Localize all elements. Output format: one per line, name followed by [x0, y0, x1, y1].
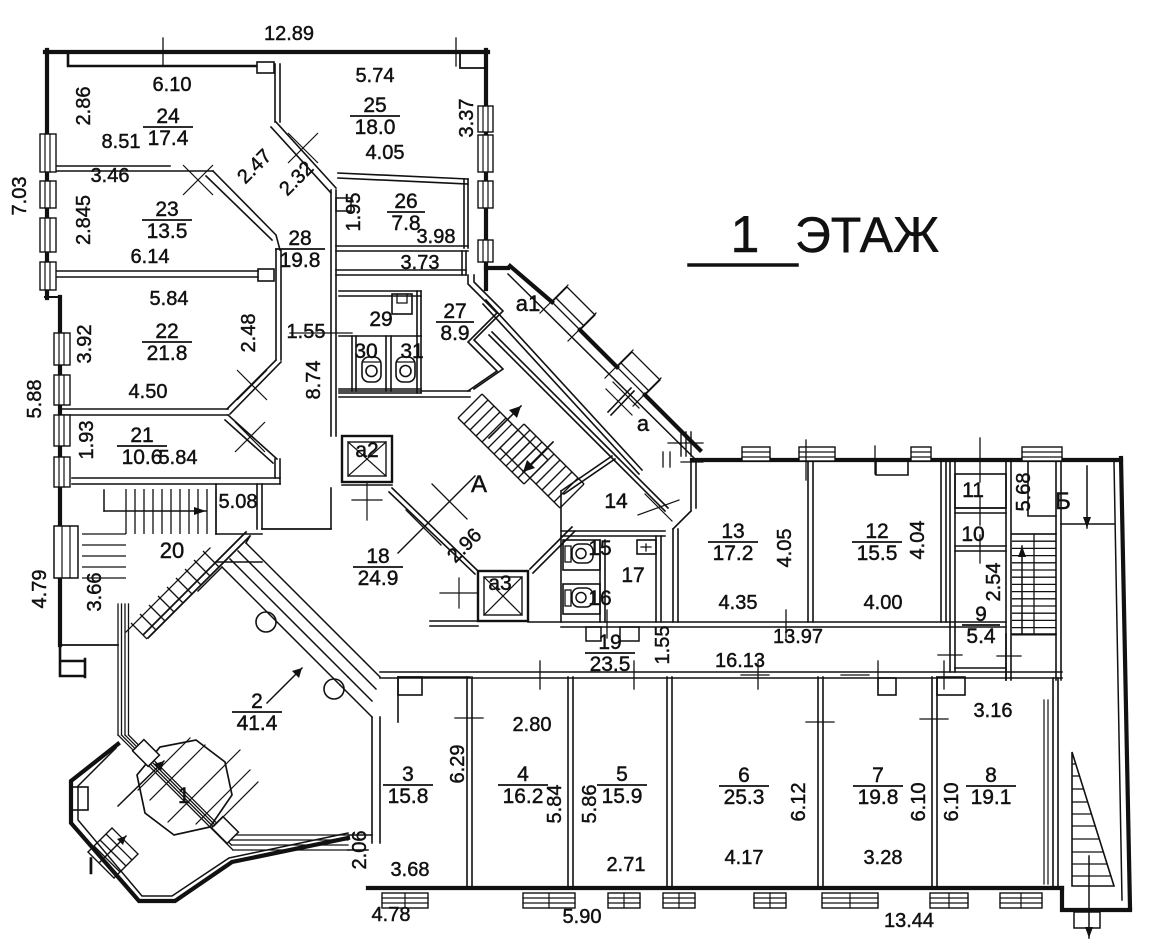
svg-text:a2: a2 — [355, 439, 378, 462]
svg-text:5.74: 5.74 — [356, 65, 395, 87]
svg-text:23: 23 — [155, 198, 178, 221]
svg-text:5.88: 5.88 — [24, 380, 46, 419]
svg-text:3.98: 3.98 — [417, 226, 456, 248]
svg-text:23.5: 23.5 — [590, 653, 631, 676]
svg-text:13.44: 13.44 — [884, 910, 934, 932]
svg-text:19.8: 19.8 — [280, 249, 321, 272]
svg-text:26: 26 — [394, 190, 417, 213]
svg-text:5: 5 — [616, 763, 628, 786]
svg-text:3.68: 3.68 — [391, 859, 430, 881]
svg-text:3: 3 — [402, 763, 414, 786]
svg-text:3.37: 3.37 — [456, 99, 478, 138]
svg-text:21.8: 21.8 — [147, 342, 188, 365]
svg-text:20: 20 — [160, 538, 184, 563]
svg-text:6.10: 6.10 — [153, 74, 192, 96]
svg-text:19: 19 — [598, 631, 621, 654]
svg-text:10.6: 10.6 — [122, 446, 163, 469]
svg-text:2.80: 2.80 — [513, 714, 552, 736]
svg-text:8: 8 — [985, 764, 997, 787]
svg-text:6.12: 6.12 — [788, 783, 810, 822]
svg-text:6.10: 6.10 — [941, 783, 963, 822]
svg-text:2.845: 2.845 — [73, 195, 95, 245]
svg-text:1: 1 — [178, 783, 190, 808]
svg-text:2.71: 2.71 — [607, 854, 646, 876]
svg-text:3.92: 3.92 — [74, 325, 96, 364]
svg-text:1: 1 — [731, 206, 760, 264]
svg-text:18: 18 — [366, 545, 389, 568]
svg-text:17: 17 — [621, 564, 644, 587]
svg-text:1.93: 1.93 — [76, 421, 98, 460]
svg-text:6.29: 6.29 — [447, 745, 469, 784]
svg-text:15.9: 15.9 — [602, 785, 643, 808]
svg-text:I: I — [88, 853, 95, 880]
svg-text:30: 30 — [354, 340, 377, 363]
svg-text:6.10: 6.10 — [908, 783, 930, 822]
svg-text:A: A — [471, 471, 487, 498]
svg-text:4.17: 4.17 — [725, 847, 764, 869]
svg-text:a3: a3 — [488, 572, 511, 595]
svg-text:21: 21 — [130, 424, 153, 447]
svg-text:12: 12 — [865, 520, 888, 543]
svg-text:7.03: 7.03 — [9, 177, 31, 216]
svg-text:2: 2 — [251, 690, 263, 713]
svg-text:5.4: 5.4 — [966, 625, 996, 648]
svg-text:12.89: 12.89 — [264, 23, 314, 45]
svg-text:8.9: 8.9 — [440, 322, 469, 345]
svg-text:28: 28 — [288, 227, 311, 250]
svg-text:ЭТАЖ: ЭТАЖ — [795, 207, 939, 263]
svg-text:3.28: 3.28 — [864, 847, 903, 869]
svg-text:4.50: 4.50 — [129, 381, 168, 403]
svg-text:5.08: 5.08 — [219, 491, 258, 513]
svg-text:22: 22 — [155, 320, 178, 343]
svg-text:11: 11 — [962, 479, 984, 502]
svg-text:25.3: 25.3 — [724, 786, 765, 809]
svg-text:19.1: 19.1 — [971, 786, 1012, 809]
svg-text:24: 24 — [156, 105, 180, 128]
svg-text:31: 31 — [400, 340, 423, 363]
svg-text:13.5: 13.5 — [147, 220, 188, 243]
svg-text:18.0: 18.0 — [355, 116, 396, 139]
svg-text:16.13: 16.13 — [715, 650, 765, 672]
svg-text:3.46: 3.46 — [91, 165, 130, 187]
svg-text:17.4: 17.4 — [148, 127, 189, 150]
svg-text:17.2: 17.2 — [713, 542, 754, 565]
svg-text:5.84: 5.84 — [150, 288, 189, 310]
svg-text:3.73: 3.73 — [401, 252, 440, 274]
svg-text:4.00: 4.00 — [864, 592, 903, 614]
svg-text:a: a — [637, 411, 650, 436]
svg-text:4.04: 4.04 — [907, 521, 929, 560]
svg-text:a1: a1 — [516, 291, 540, 316]
svg-text:15: 15 — [588, 537, 611, 560]
svg-text:5.84: 5.84 — [544, 785, 566, 824]
svg-text:2.06: 2.06 — [349, 831, 371, 870]
svg-text:29: 29 — [369, 308, 392, 331]
svg-text:5.68: 5.68 — [1013, 473, 1035, 512]
svg-text:3.16: 3.16 — [974, 700, 1013, 722]
svg-text:4.05: 4.05 — [366, 142, 405, 164]
svg-text:5.90: 5.90 — [563, 906, 602, 928]
svg-text:2.86: 2.86 — [73, 87, 95, 126]
svg-text:6: 6 — [738, 764, 750, 787]
svg-text:1.95: 1.95 — [343, 193, 365, 232]
svg-text:4.35: 4.35 — [719, 592, 758, 614]
svg-text:8.51: 8.51 — [102, 131, 141, 153]
svg-text:4: 4 — [517, 763, 529, 786]
svg-text:27: 27 — [443, 300, 466, 323]
svg-text:8.74: 8.74 — [303, 361, 325, 400]
svg-text:1.55: 1.55 — [652, 626, 674, 665]
svg-text:19.8: 19.8 — [858, 786, 899, 809]
svg-text:Б: Б — [1055, 488, 1071, 515]
svg-text:2.54: 2.54 — [983, 563, 1005, 602]
svg-text:5.86: 5.86 — [579, 785, 601, 824]
svg-text:15.5: 15.5 — [857, 542, 898, 565]
svg-text:4.78: 4.78 — [372, 904, 411, 926]
svg-text:16: 16 — [588, 587, 611, 610]
svg-text:4.05: 4.05 — [774, 529, 796, 568]
svg-text:6.14: 6.14 — [131, 246, 170, 268]
svg-text:3.66: 3.66 — [84, 573, 106, 612]
svg-text:16.2: 16.2 — [503, 785, 544, 808]
svg-text:2.48: 2.48 — [238, 314, 260, 353]
svg-text:15.8: 15.8 — [388, 785, 429, 808]
svg-text:1.55: 1.55 — [287, 321, 326, 343]
svg-text:9: 9 — [975, 603, 987, 626]
svg-text:13.97: 13.97 — [773, 626, 823, 648]
svg-text:24.9: 24.9 — [358, 567, 399, 590]
svg-text:13: 13 — [721, 520, 744, 543]
svg-text:5.84: 5.84 — [159, 447, 198, 469]
svg-text:7: 7 — [872, 764, 884, 787]
svg-text:4.79: 4.79 — [29, 570, 51, 609]
svg-text:41.4: 41.4 — [237, 712, 278, 735]
svg-text:10: 10 — [961, 523, 984, 546]
svg-text:14: 14 — [604, 490, 628, 513]
svg-text:25: 25 — [363, 94, 386, 117]
